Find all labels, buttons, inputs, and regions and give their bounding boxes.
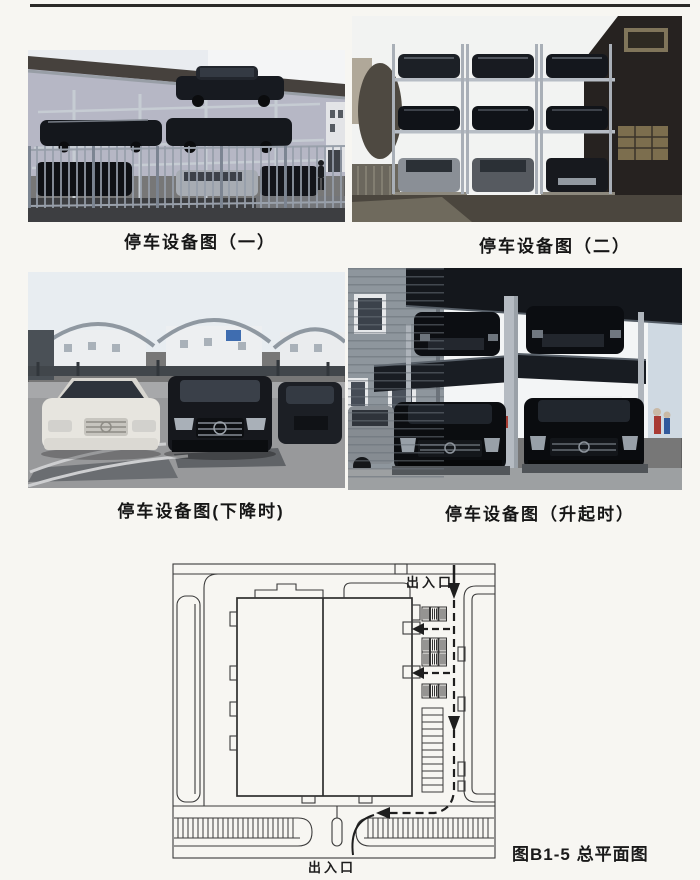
cars-top-level [398, 54, 608, 78]
dark-car-right [278, 382, 342, 444]
side-parking-stalls [422, 708, 443, 792]
vehicle-route [352, 565, 460, 855]
entrance-top-label: 出入口 [406, 575, 454, 590]
caption-photo-2: 停车设备图（二） [395, 232, 700, 257]
block-edge [204, 574, 218, 806]
street-parking-bands [174, 806, 494, 846]
photo-2-illustration [352, 16, 682, 222]
photo-parking-equipment-2 [352, 16, 682, 222]
photo-parking-equipment-1 [28, 50, 345, 222]
route-arrow-down [448, 716, 460, 732]
caption-photo-4: 停车设备图（升起时） [380, 500, 700, 525]
caption-photo-3: 停车设备图(下降时) [41, 497, 361, 522]
scanned-document-page: { "page": { "paper_color": "#f7f6f2", "i… [0, 0, 700, 880]
page-top-rule [30, 4, 690, 7]
cars-ground-level [398, 158, 608, 192]
building-siding-lines [348, 268, 444, 478]
median-island [332, 818, 342, 846]
fence-pickets [28, 146, 345, 208]
entrance-bottom-label: 出入口 [308, 860, 356, 875]
parking-unit-clusters [422, 607, 447, 698]
photo-3-illustration [28, 272, 345, 488]
black-suv [164, 376, 276, 460]
photo-parking-equipment-lowered [28, 272, 345, 488]
main-building [237, 598, 412, 796]
top-gate-block [395, 564, 407, 574]
branch-arrow-2 [412, 667, 424, 679]
caption-photo-1: 停车设备图（一） [40, 228, 360, 253]
cars-mid-level [398, 106, 608, 130]
site-plan-caption: 图B1-5 总平面图 [512, 840, 649, 865]
parapet-steps [255, 584, 323, 598]
ground [352, 195, 682, 222]
roof-canopy [344, 583, 410, 598]
photo-parking-equipment-raised [348, 268, 682, 490]
route-arrow-left [376, 807, 390, 819]
right-building-strip [458, 586, 495, 802]
building-details [230, 583, 420, 803]
left-parking-strip [177, 596, 200, 802]
site-plan-drawing: 出入口 出入口 [160, 550, 520, 880]
branch-arrow-1 [412, 623, 424, 635]
